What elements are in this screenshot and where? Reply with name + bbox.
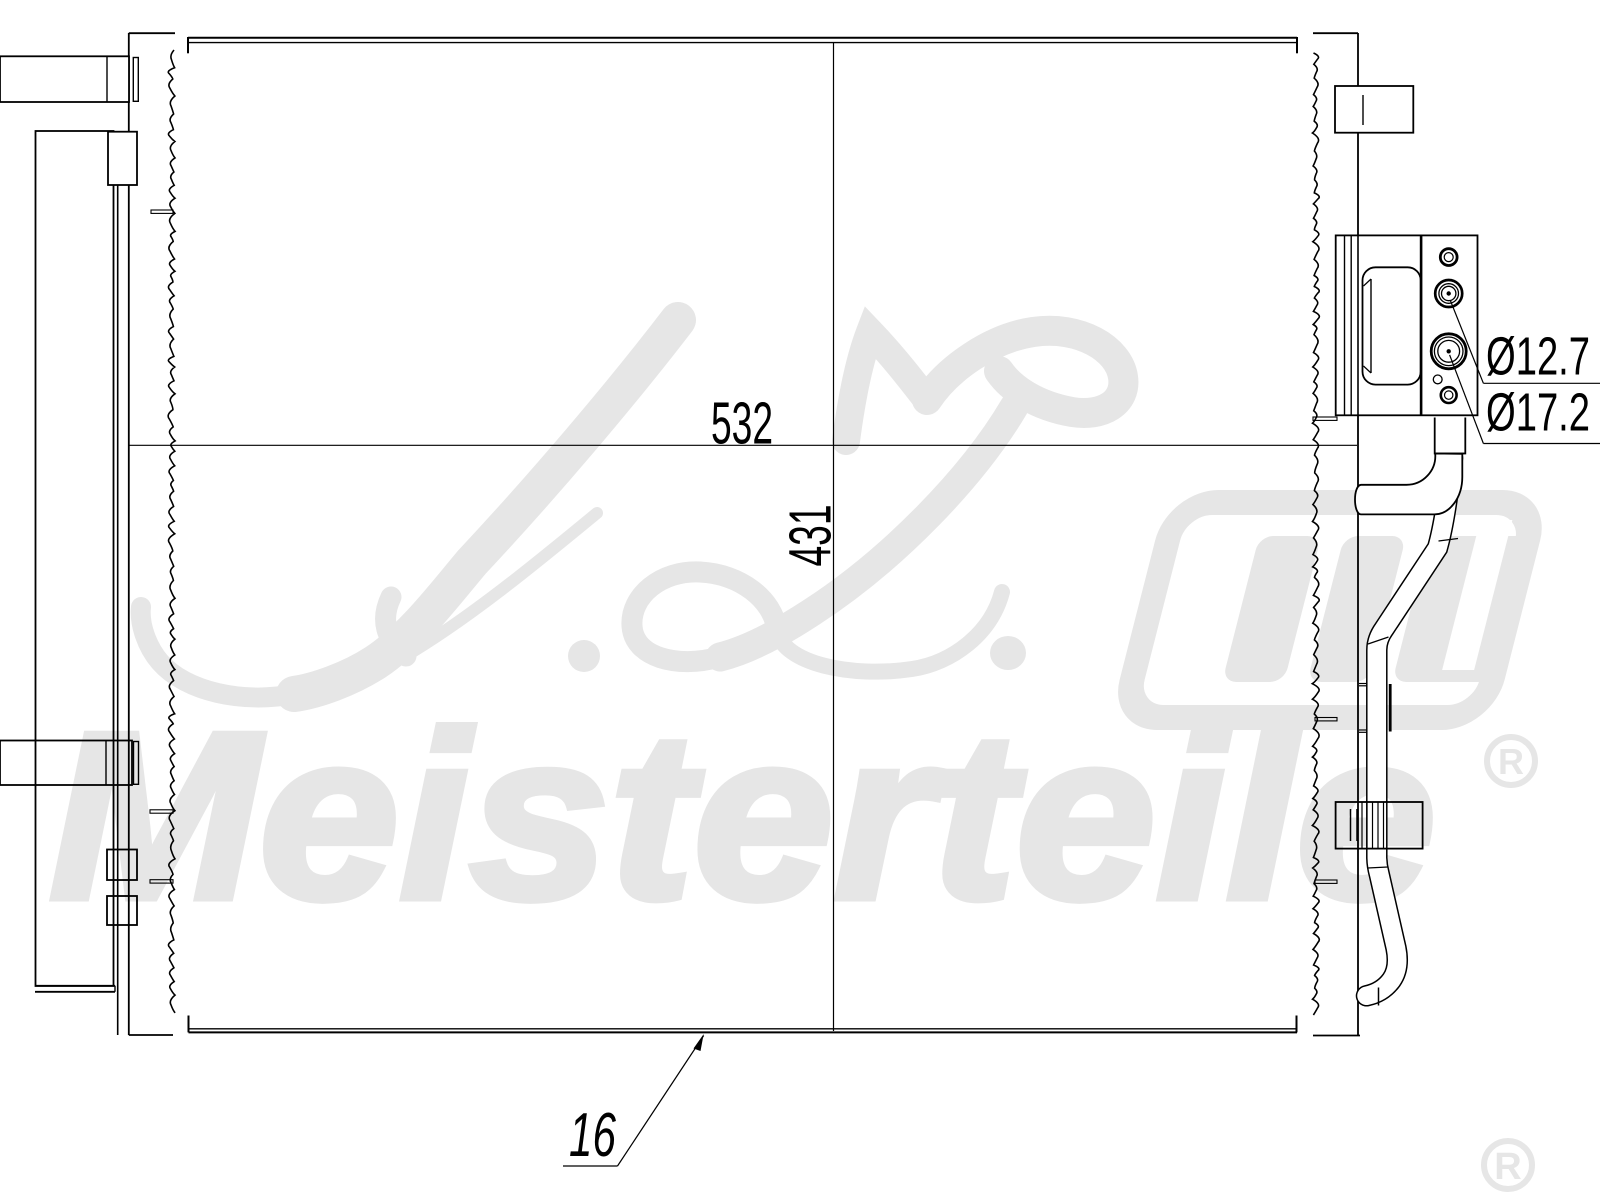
svg-text:532: 532	[711, 391, 773, 457]
svg-text:Ø17.2: Ø17.2	[1486, 382, 1590, 442]
svg-text:R: R	[1494, 1146, 1521, 1188]
svg-text:431: 431	[778, 504, 844, 566]
svg-text:Meisterteile: Meisterteile	[49, 682, 1436, 948]
svg-text:16: 16	[569, 1101, 616, 1170]
svg-text:R: R	[1498, 741, 1524, 782]
svg-text:Ø12.7: Ø12.7	[1486, 326, 1590, 386]
